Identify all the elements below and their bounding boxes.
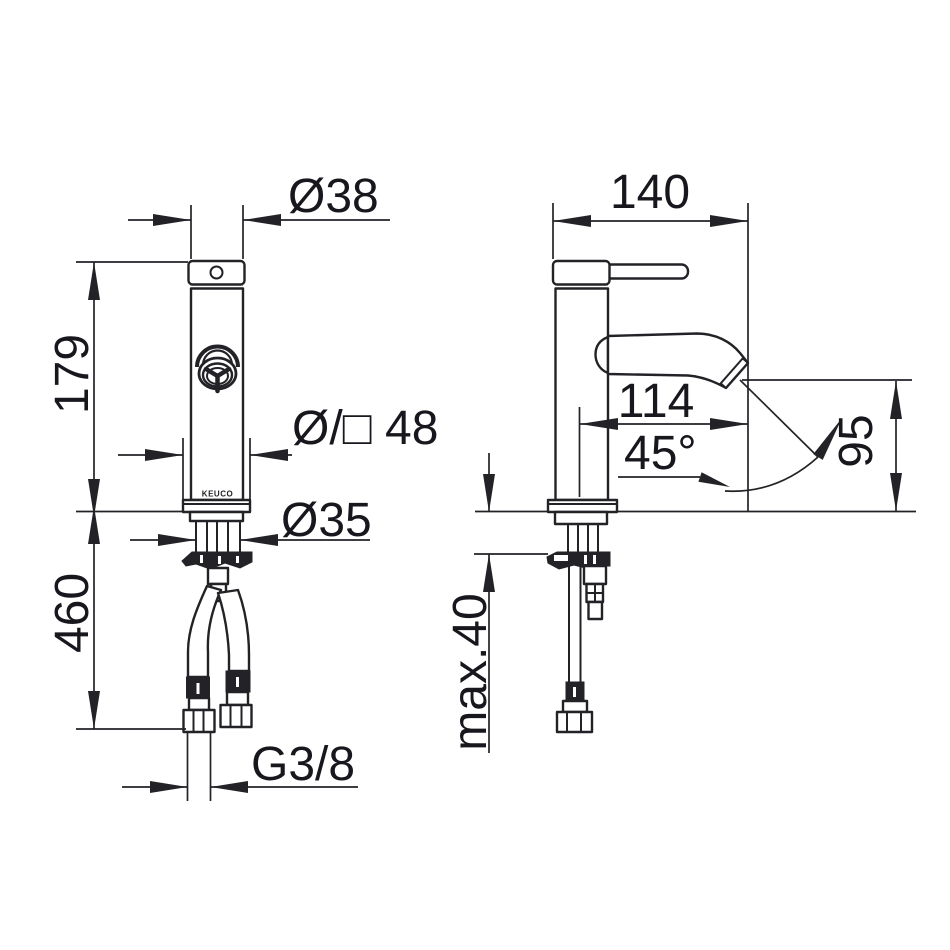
dim-label-spout-angle: 45°: [624, 427, 697, 480]
arrowhead: [211, 781, 249, 793]
arrowhead: [158, 534, 196, 546]
connector-left: [189, 698, 209, 710]
arrowhead: [483, 474, 495, 512]
angle-arc: [725, 457, 818, 491]
brand-logo: KEUCO: [202, 490, 233, 499]
washer-slit: [584, 555, 587, 564]
stream-direction-line: [740, 380, 818, 457]
side-base-skirt: [555, 512, 607, 524]
hex-nut-left: [184, 710, 215, 732]
front-body: [191, 289, 243, 501]
dim-label-spout-height: 95: [830, 414, 883, 467]
dim-label-mounting-max: max.40: [444, 593, 497, 750]
washer-highlight: [554, 555, 568, 561]
side-hex-nut: [557, 712, 592, 732]
dim-label-hose-length: 460: [46, 573, 99, 653]
washer-slit: [593, 555, 596, 564]
arrowhead: [243, 214, 281, 226]
arrowhead: [710, 215, 748, 227]
front-base-skirt: [190, 512, 243, 521]
side-mounting-nut: [584, 566, 606, 584]
front-base-flange: [183, 500, 250, 512]
arrowhead: [88, 262, 100, 300]
arrowhead: [250, 449, 288, 461]
front-mounting-nut: [208, 568, 228, 584]
dim-label-thread: G3/8: [251, 738, 355, 791]
front-top-cap: [189, 261, 245, 285]
side-handle-lever: [605, 265, 688, 279]
side-shank-pipes: [568, 524, 598, 552]
dim-label-base: Ø/□ 48: [292, 402, 438, 455]
front-hose-left: [188, 586, 221, 677]
hex-nut-right: [221, 705, 252, 727]
arrowhead: [150, 781, 188, 793]
arrowhead: [483, 554, 495, 592]
arrowhead: [890, 381, 902, 419]
dim-label-body-height: 179: [46, 334, 99, 414]
side-rod-end: [589, 602, 603, 619]
side-view-dimensions: 140 114 45° 95 max.40: [444, 166, 912, 753]
washer-plate: [182, 552, 252, 569]
connector-right: [227, 692, 248, 705]
side-view-faucet: [547, 261, 748, 732]
crimp-slit: [573, 687, 576, 697]
arrowhead: [240, 534, 278, 546]
dim-label-top-diameter: Ø38: [288, 170, 379, 223]
side-connector: [563, 701, 587, 712]
front-shank-pipes: [196, 521, 240, 552]
crimp-slit: [197, 683, 200, 694]
dimension-drawing-canvas: KEUCO: [0, 0, 950, 950]
washer-slit: [200, 555, 203, 563]
arrowhead: [890, 473, 902, 511]
arrowhead: [88, 691, 100, 729]
side-top-cap: [553, 261, 610, 285]
arrowhead: [145, 449, 183, 461]
washer-slit: [218, 556, 221, 564]
front-view-faucet: KEUCO: [182, 261, 252, 732]
dim-label-depth: 140: [610, 166, 690, 219]
side-base-flange: [548, 500, 617, 512]
arrowhead: [710, 418, 748, 430]
front-hose-right: [218, 590, 249, 671]
arrowhead: [553, 215, 591, 227]
side-body: [556, 289, 609, 501]
dim-label-spout-reach: 114: [618, 375, 695, 428]
washer-slit: [236, 556, 239, 563]
dim-label-shank-diameter: Ø35: [281, 494, 372, 547]
technical-drawing-page: KEUCO: [0, 0, 950, 950]
arrowhead: [153, 214, 191, 226]
crimp-slit: [236, 677, 239, 687]
leader-arrowhead: [698, 472, 730, 487]
front-mounting-washer: [182, 552, 252, 569]
